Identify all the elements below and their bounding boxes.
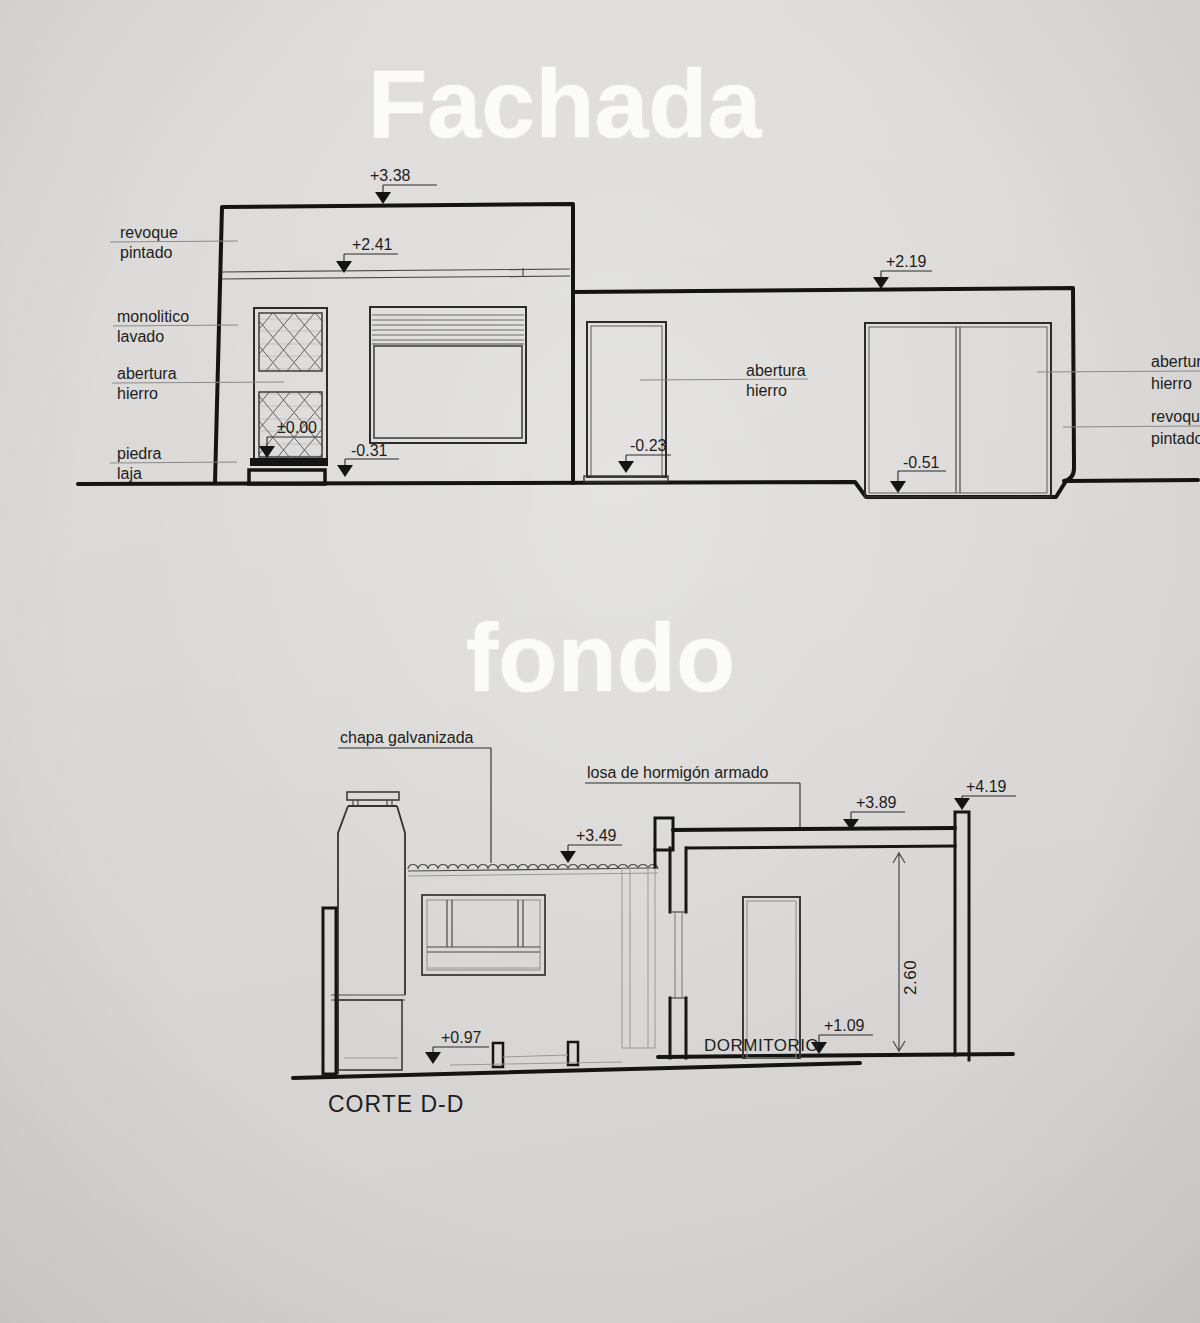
- svg-text:losa de hormigón armado: losa de hormigón armado: [587, 764, 769, 781]
- garden-wall: [323, 908, 336, 1074]
- svg-text:piedra: piedra: [117, 445, 162, 462]
- section-drawing: 2.60 +3.49 +3.89 +4.19 +0.97 +1.09: [293, 729, 1016, 1117]
- room-label: DORMITORIO: [704, 1036, 819, 1055]
- door-lattice-top-panel: [259, 313, 322, 371]
- label-abertura-hierro-left: abertura hierro: [112, 365, 284, 402]
- level-value: -0.51: [903, 454, 940, 471]
- svg-text:laja: laja: [117, 465, 142, 482]
- bedroom-left-wall: [655, 818, 686, 1058]
- svg-text:lavado: lavado: [117, 328, 164, 345]
- svg-text:pintado: pintado: [120, 244, 173, 261]
- level-marker-roof: +3.38: [370, 167, 437, 204]
- level-value: -0.23: [630, 437, 667, 454]
- level-value: +3.38: [370, 167, 411, 184]
- roller-shutter-slats: [372, 315, 524, 340]
- chimney-cap: [347, 792, 399, 800]
- height-dimension: 2.60: [893, 852, 920, 1052]
- chimney: [331, 792, 405, 1074]
- level-marker-roof-sheet: +3.49: [560, 827, 622, 863]
- door-threshold: [250, 458, 328, 466]
- level-value: +3.49: [576, 827, 617, 844]
- facade-drawing: +3.38 +2.41 +2.19 ±0.00 -0.31 -0.23: [78, 167, 1200, 497]
- label-chapa-galvanizada: chapa galvanizada: [338, 729, 491, 863]
- label-revoque-pintado-right: revoque pintado: [1063, 408, 1200, 447]
- level-marker-ground-door: -0.23: [618, 437, 671, 473]
- level-value: +0.97: [441, 1029, 482, 1046]
- section-caption: CORTE D-D: [328, 1091, 464, 1117]
- level-marker-floor-left: +0.97: [425, 1029, 489, 1064]
- wall-window-opening: [675, 912, 682, 998]
- level-value: +1.09: [824, 1017, 865, 1034]
- svg-text:abertura: abertura: [746, 362, 806, 379]
- svg-text:abertura: abertura: [117, 365, 177, 382]
- fireplace-box: [338, 1000, 402, 1070]
- label-abertura-hierro-right: abertura hierro: [1037, 353, 1200, 392]
- bedroom-door: [743, 897, 800, 1058]
- photographed-architectural-plan: { "titles": { "facade": "Fachada", "sect…: [0, 0, 1200, 1323]
- corrugated-roof: [408, 865, 658, 877]
- level-value: -0.31: [351, 442, 388, 459]
- level-marker-ground-right: -0.51: [890, 454, 946, 493]
- plan-drawing-canvas: +3.38 +2.41 +2.19 ±0.00 -0.31 -0.23: [0, 0, 1200, 1323]
- svg-text:hierro: hierro: [1151, 375, 1192, 392]
- slab-upstand: [655, 818, 673, 850]
- level-marker-floor-room: +1.09: [811, 1017, 873, 1054]
- right-parapet-wall: [955, 812, 969, 1060]
- facade-window: [370, 307, 526, 443]
- level-value: ±0.00: [277, 419, 317, 436]
- dimension-value: 2.60: [901, 960, 920, 995]
- level-value: +2.41: [352, 236, 393, 253]
- svg-text:chapa galvanizada: chapa galvanizada: [340, 729, 474, 746]
- entrance-door: [249, 308, 328, 484]
- level-marker-slab: +3.89: [843, 794, 905, 830]
- label-losa-hormigon: losa de hormigón armado: [585, 764, 800, 828]
- double-door: [865, 323, 1051, 497]
- svg-text:revoque: revoque: [1151, 408, 1200, 425]
- label-piedra-laja: piedra laja: [110, 445, 237, 482]
- level-marker-right-top: +2.19: [873, 253, 932, 289]
- svg-text:hierro: hierro: [117, 385, 158, 402]
- svg-text:revoque: revoque: [120, 224, 178, 241]
- svg-text:monolitico: monolitico: [117, 308, 189, 325]
- level-value: +4.19: [966, 778, 1007, 795]
- interior-window: [422, 895, 545, 975]
- level-marker-parapet: +4.19: [954, 778, 1016, 810]
- background-partition: [622, 868, 655, 1048]
- chimney-body: [338, 806, 405, 1074]
- level-value: +2.19: [886, 253, 927, 270]
- concrete-slab: [673, 828, 955, 848]
- svg-text:abertura: abertura: [1151, 353, 1200, 370]
- level-value: +3.89: [856, 794, 897, 811]
- level-marker-band: +2.41: [336, 236, 398, 273]
- double-door-mullion: [956, 327, 960, 493]
- svg-text:hierro: hierro: [746, 382, 787, 399]
- facade-band: [222, 268, 570, 279]
- level-marker-ground-left: -0.31: [337, 442, 399, 477]
- svg-text:pintado: pintado: [1151, 430, 1200, 447]
